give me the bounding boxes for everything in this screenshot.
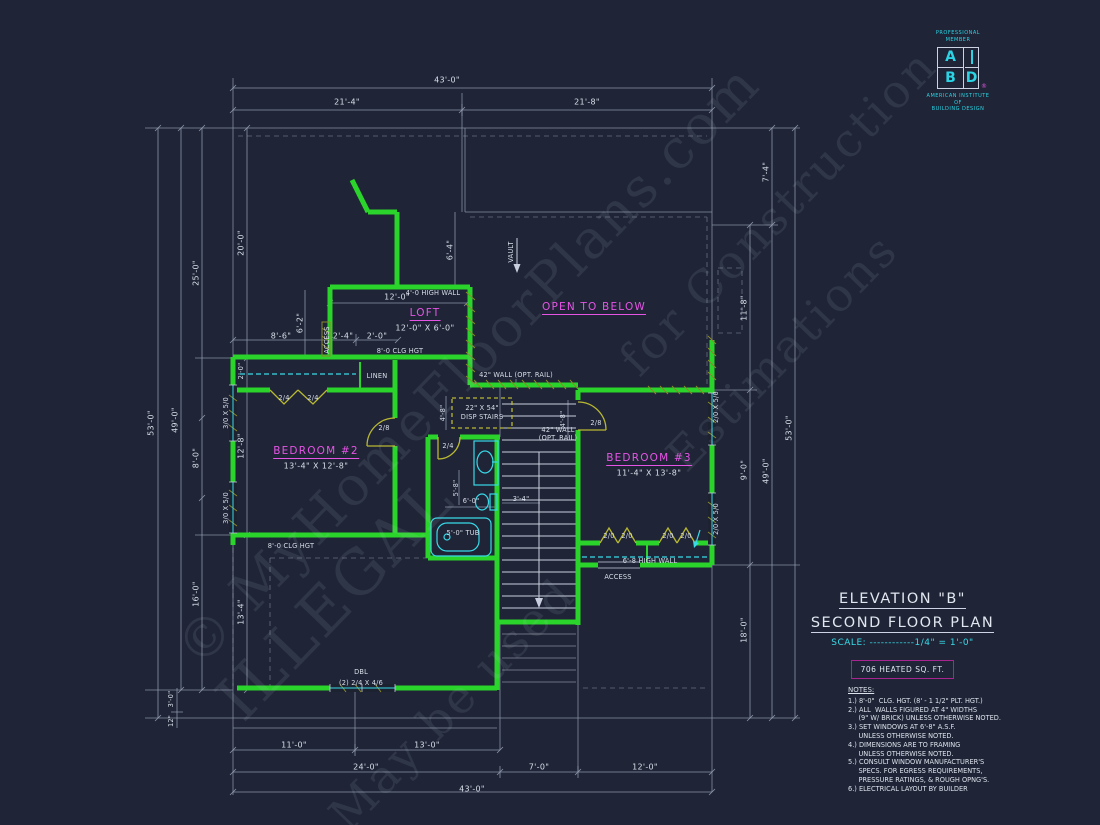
dim-label: 4'-8" [559,411,567,428]
scale-note: SCALE: ------------1/4" = 1'-0" [795,638,1010,648]
access-label-2: ACCESS [604,573,631,581]
dim-label: 2/0 [621,532,632,540]
dim-label: 8'-6" [271,332,291,341]
bedroom3-label: BEDROOM #3 [606,452,692,466]
dim-label: 6'-0" [463,497,480,505]
dim-label: 16'-0" [192,581,201,607]
dim-label: 3'-0" [167,691,175,708]
dim-label: 49'-0" [762,458,771,484]
dim-label: 2/0 [603,532,614,540]
dim-label: 6'-2" [296,313,305,333]
note-line: PRESSURE RATINGS, & ROUGH OPNG'S. [848,776,1023,785]
dim-label: 18'-0" [740,617,749,643]
dim-label: 2'-0" [237,363,245,380]
note-line: 6.) ELECTRICAL LAYOUT BY BUILDER [848,785,1023,794]
logo-org-line1: AMERICAN INSTITUTE [922,93,994,100]
dim-label: 21'-8" [574,98,600,107]
dim-label: 3'-4" [513,495,530,503]
bedroom2-label: BEDROOM #2 [273,445,359,459]
clg-hgt-label-2: 8'-0 CLG HGT [268,542,314,550]
logo-member-line2: MEMBER [922,37,994,44]
dim-label: 12'-0" [384,293,410,302]
dim-label: 13'-4" [237,599,246,625]
dim-label: 12'-0" [632,763,658,772]
logo-letter-b: B [938,68,964,88]
floor-plan-sheet: © MyHomeFloorPlans.comILLEGALfor Constru… [0,0,1100,825]
heated-sqft-badge: 706 HEATED SQ. FT. [851,660,955,679]
dim-label: 43'-0" [434,76,460,85]
high-wall-label-2: 6'-8 HIGH WALL [623,557,678,565]
window-left-lower [229,482,237,533]
aibd-logo-mark: A B D ® [937,47,979,89]
dim-label: 21'-4" [334,98,360,107]
sink [477,451,493,473]
note-line: (9" W/ BRICK) UNLESS OTHERWISE NOTED. [848,714,1023,723]
notes-block: NOTES:1.) 8'-0" CLG. HGT. (8' - 1 1/2" P… [848,686,1023,794]
dim-label: (OPT. RAIL) [539,434,577,442]
linen-label: LINEN [367,372,388,380]
dim-label: 12'-0" X 6'-0" [395,324,454,333]
note-line: 1.) 8'-0" CLG. HGT. (8' - 1 1/2" PLT. HG… [848,697,1023,706]
dim-label: 2/4 [442,442,453,450]
tub-label: 5'-0" TUB [447,529,480,537]
dim-label: 11'-8" [740,295,749,321]
sheet-title-plan: SECOND FLOOR PLAN [811,615,994,633]
high-wall-label: 4'-0 HIGH WALL [406,289,461,297]
note-line: 5.) CONSULT WINDOW MANUFACTURER'S [848,758,1023,767]
dbl-window-label: (2) 2/4 X 4/6 [339,679,383,687]
dim-label: 11'-0" [281,741,307,750]
window-label: 2/0 X 5/0 [712,391,720,423]
aibd-logo: PROFESSIONAL MEMBER A B D ® AMERICAN INS… [922,30,994,113]
dim-label: 4'-8" [439,405,447,422]
dim-label: 25'-0" [192,260,201,286]
dim-label: 13'-4" X 12'-8" [284,462,349,471]
note-line: NOTES: [848,686,1023,695]
registered-mark: ® [981,83,987,90]
logo-org-line3: BUILDING DESIGN [922,106,994,113]
dim-label: 12" [167,715,175,727]
note-line: 4.) DIMENSIONS ARE TO FRAMING [848,741,1023,750]
title-block: ELEVATION "B" SECOND FLOOR PLAN SCALE: -… [795,588,1010,679]
dim-label: 2/8 [378,424,389,432]
note-line: 2.) ALL WALLS FIGURED AT 4" WIDTHS [848,706,1023,715]
logo-bar [965,48,978,68]
clg-hgt-label: 8'-0 CLG HGT [377,347,423,355]
note-line: SPECS. FOR EGRESS REQUIREMENTS, [848,767,1023,776]
logo-letter-a: A [938,48,964,68]
disp-stairs-label: DISP STAIRS [461,413,503,421]
window-label: 2/0 X 5/0 [712,503,720,535]
dim-label: 24'-0" [353,763,379,772]
dim-label: 7'-4" [762,162,771,182]
window-label: 3/0 X 5/0 [222,397,230,429]
dim-label: 2/4 [278,394,289,402]
dim-label: 42" WALL [541,426,574,434]
vault-label: VAULT [507,241,515,262]
dim-label: DBL [354,668,368,676]
dim-label: 12'-8" [237,433,246,459]
dim-label: 7'-0" [529,763,549,772]
open-to-below-label: OPEN TO BELOW [542,301,646,315]
dim-label: 20'-0" [237,230,246,256]
dim-label: 43'-0" [459,785,485,794]
access-label: ACCESS [323,326,331,353]
note-line: UNLESS OTHERWISE NOTED. [848,732,1023,741]
dim-label: 5'-8" [452,480,460,497]
dim-label: 49'-0" [171,407,180,433]
sheet-title-elevation: ELEVATION "B" [839,591,966,609]
dim-label: 2/0 [662,532,673,540]
loft-label: LOFT [410,307,441,321]
dim-label: 8'-0" [192,448,201,468]
dim-label: 22" X 54" [465,404,498,412]
dim-label: 53'-0" [785,415,794,441]
dim-label: 2/4 [307,394,318,402]
dim-label: 53'-0" [147,410,156,436]
dim-label: 6'-4" [446,240,455,260]
logo-letter-d: D [965,68,978,88]
note-line: UNLESS OTHERWISE NOTED. [848,750,1023,759]
dim-label: 2'-0" [367,332,387,341]
note-line: 3.) SET WINDOWS AT 6'-8" A.S.F. [848,723,1023,732]
dim-label: 2/0 [680,532,691,540]
rail-wall-label: 42" WALL (OPT. RAIL) [479,371,553,379]
dim-label: 2/8 [590,419,601,427]
dim-label: 13'-0" [414,741,440,750]
dim-label: 11'-4" X 13'-8" [617,469,682,478]
dim-label: 2'-4" [333,332,353,341]
window-label: 3/0 X 5/0 [222,492,230,524]
dim-label: 9'-0" [740,460,749,480]
